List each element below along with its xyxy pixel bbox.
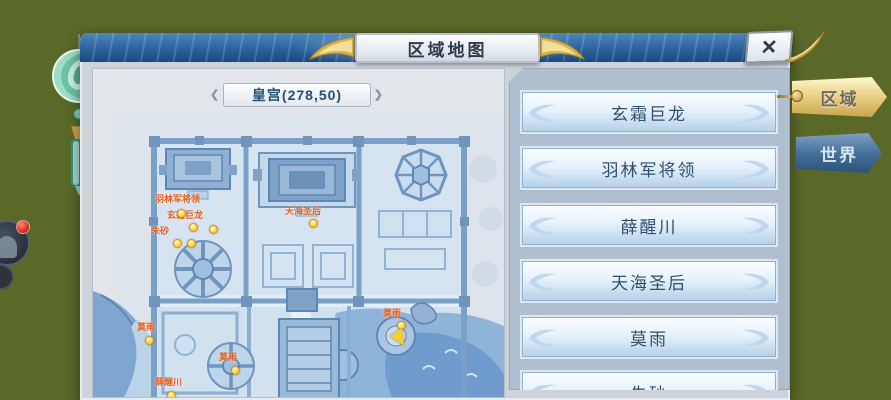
- npc-map-label[interactable]: 天海圣后: [285, 206, 321, 216]
- close-icon: ✕: [759, 34, 778, 60]
- phoenix-eye-icon: [740, 156, 770, 182]
- avatar-figure-icon: [0, 236, 17, 258]
- npc-marker-dot[interactable]: [187, 239, 196, 248]
- edge-secondary-button[interactable]: [0, 264, 14, 290]
- title-wing-right-icon: [538, 35, 586, 61]
- roster-item[interactable]: 朱砂: [522, 372, 776, 390]
- phoenix-eye-icon: [528, 156, 558, 182]
- phoenix-eye-icon: [528, 269, 558, 295]
- roster-item[interactable]: 天海圣后: [522, 261, 776, 301]
- game-screen: 区域地图 ✕: [0, 0, 891, 400]
- npc-marker-dot[interactable]: [231, 366, 240, 375]
- roster-item-label: 玄霜巨龙: [611, 100, 687, 125]
- phoenix-eye-icon: [528, 380, 558, 390]
- phoenix-eye-icon: [740, 380, 770, 390]
- roster-item[interactable]: 薛醒川: [522, 205, 776, 245]
- location-chevron-right-icon: ❯: [374, 88, 384, 101]
- gold-pin-icon: [777, 90, 803, 102]
- phoenix-eye-icon: [740, 100, 770, 126]
- phoenix-eye-icon: [740, 325, 770, 351]
- map-location-label: 皇宫(278,50): [252, 85, 342, 105]
- tab-region[interactable]: 区域: [792, 77, 887, 117]
- npc-marker-dot[interactable]: [167, 391, 176, 398]
- npc-roster-panel: 玄霜巨龙 羽林军将领 薛醒川 天海圣后 莫雨: [509, 68, 790, 390]
- roster-item-label: 朱砂: [630, 380, 668, 391]
- npc-marker-dot[interactable]: [177, 209, 186, 218]
- tab-world[interactable]: 世界: [796, 133, 882, 173]
- npc-map-label[interactable]: 薛醒川: [155, 377, 182, 387]
- npc-map-label[interactable]: 莫雨: [383, 308, 401, 318]
- title-wing-left-icon: [308, 35, 356, 61]
- roster-item[interactable]: 羽林军将领: [522, 148, 776, 188]
- roster-item[interactable]: 莫雨: [522, 317, 776, 357]
- npc-map-label[interactable]: 朱砂: [151, 226, 169, 236]
- roster-item-label: 莫雨: [630, 325, 668, 350]
- npc-map-label[interactable]: 莫雨: [137, 322, 155, 332]
- roster-item-label: 天海圣后: [611, 269, 687, 294]
- roster-item[interactable]: 玄霜巨龙: [522, 92, 776, 132]
- npc-map-label[interactable]: 羽林军将领: [155, 194, 200, 204]
- npc-marker-dot[interactable]: [209, 225, 218, 234]
- phoenix-eye-icon: [528, 213, 558, 239]
- npc-map-label[interactable]: 莫雨: [219, 352, 237, 362]
- phoenix-eye-icon: [528, 100, 558, 126]
- phoenix-eye-icon: [528, 325, 558, 351]
- phoenix-eye-icon: [740, 213, 770, 239]
- roster-item-label: 羽林军将领: [602, 156, 697, 181]
- map-panel[interactable]: ❮ 皇宫(278,50) ❯ 羽林军将领 玄霜巨龙 朱砂 天海圣后 莫雨 莫雨 …: [92, 68, 505, 398]
- npc-marker-dot[interactable]: [189, 223, 198, 232]
- roster-item-label: 薛醒川: [621, 213, 678, 238]
- phoenix-eye-icon: [740, 269, 770, 295]
- npc-marker-dot[interactable]: [173, 239, 182, 248]
- npc-marker-dot[interactable]: [309, 219, 318, 228]
- location-chevron-left-icon: ❮: [210, 88, 220, 101]
- npc-marker-dot[interactable]: [145, 336, 154, 345]
- notification-badge: [16, 220, 30, 234]
- map-location-pill: ❮ 皇宫(278,50) ❯: [223, 83, 371, 107]
- region-map-dialog: 区域地图 ✕: [80, 33, 790, 400]
- close-feather-decoration: [784, 28, 830, 64]
- dialog-title: 区域地图: [355, 33, 540, 63]
